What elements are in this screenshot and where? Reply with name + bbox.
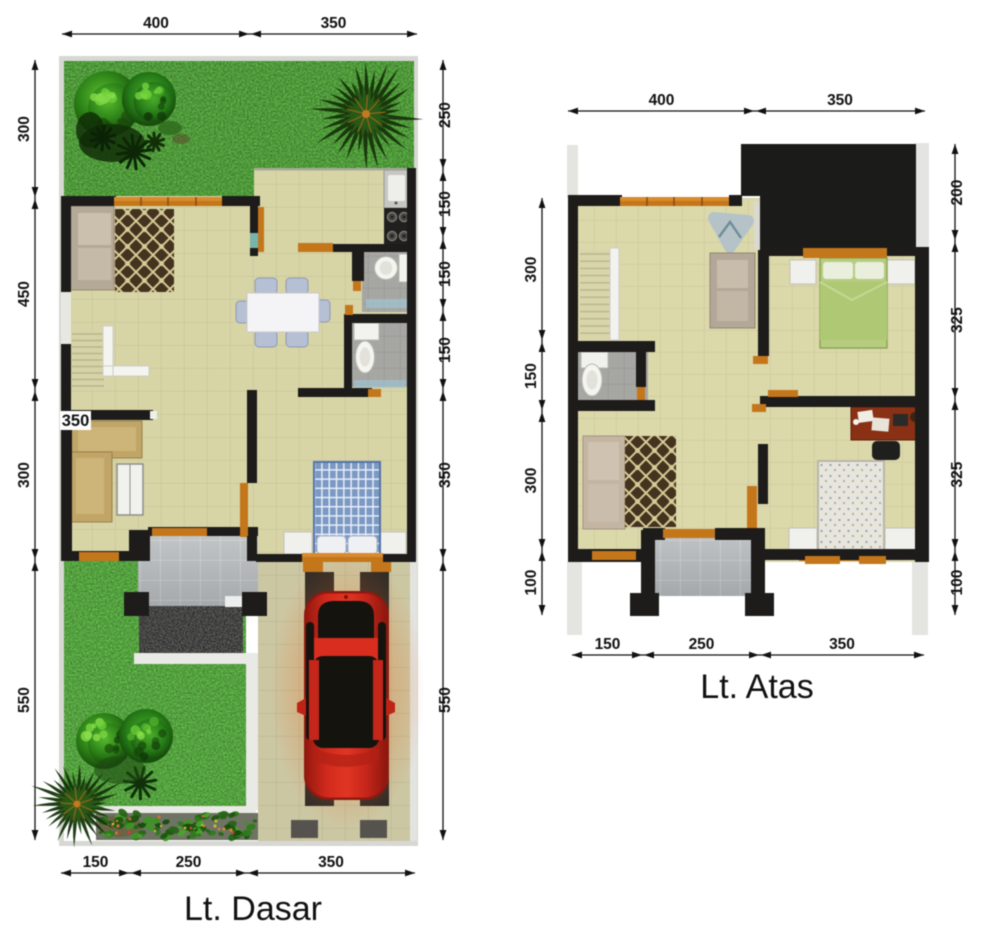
svg-text:400: 400 (649, 92, 675, 109)
svg-text:350: 350 (62, 412, 90, 430)
svg-text:350: 350 (437, 462, 454, 488)
svg-text:350: 350 (318, 854, 344, 871)
svg-text:Lt. Atas: Lt. Atas (700, 668, 813, 706)
svg-text:300: 300 (16, 462, 33, 488)
svg-text:250: 250 (176, 854, 202, 871)
svg-text:150: 150 (437, 261, 454, 287)
svg-text:100: 100 (949, 570, 966, 596)
svg-text:550: 550 (16, 687, 33, 713)
svg-text:325: 325 (949, 307, 966, 333)
svg-text:350: 350 (829, 636, 855, 653)
svg-text:250: 250 (689, 636, 715, 653)
svg-text:350: 350 (321, 15, 347, 32)
svg-text:300: 300 (523, 257, 540, 283)
svg-text:550: 550 (437, 687, 454, 713)
svg-text:150: 150 (523, 363, 540, 389)
svg-text:150: 150 (595, 636, 621, 653)
svg-text:100: 100 (523, 570, 540, 596)
svg-text:400: 400 (143, 15, 169, 32)
svg-text:350: 350 (827, 92, 853, 109)
svg-text:Lt. Dasar: Lt. Dasar (184, 890, 322, 927)
svg-text:150: 150 (437, 191, 454, 217)
svg-text:150: 150 (437, 337, 454, 363)
svg-text:450: 450 (16, 281, 33, 307)
svg-text:300: 300 (16, 116, 33, 142)
svg-text:150: 150 (83, 854, 109, 871)
svg-text:325: 325 (949, 461, 966, 487)
svg-text:200: 200 (949, 180, 966, 206)
svg-text:250: 250 (437, 102, 454, 128)
svg-text:300: 300 (523, 468, 540, 494)
